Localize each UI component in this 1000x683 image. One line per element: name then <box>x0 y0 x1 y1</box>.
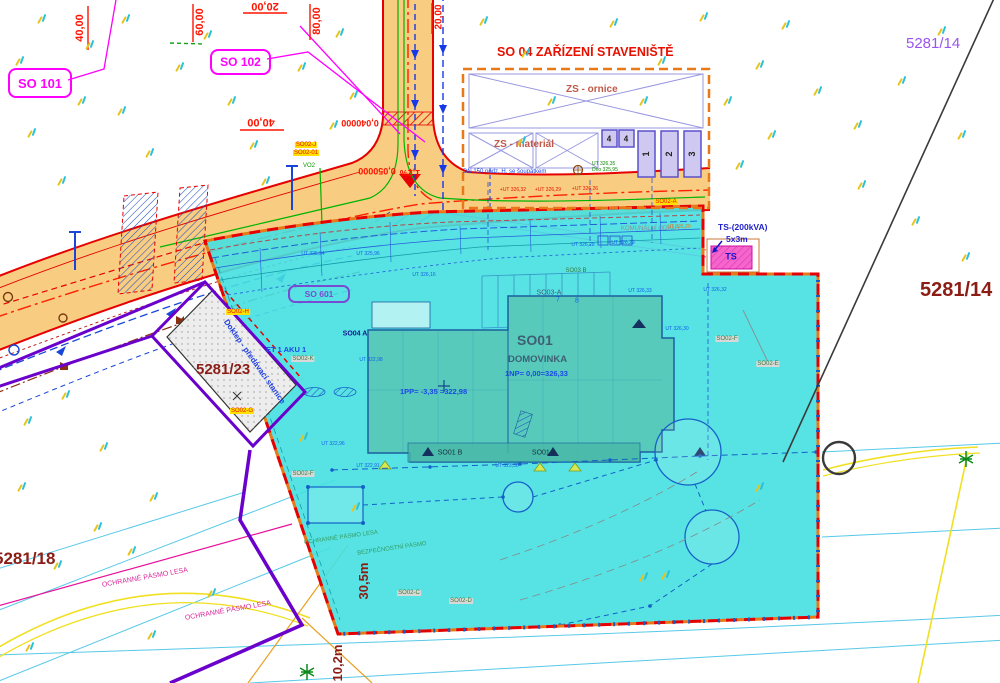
dn150-note: DN 150 podz. H. se šoupátkem <box>463 169 546 175</box>
et-aku-label: ET 1 AKU 1 <box>266 346 306 354</box>
vegetation-mark <box>658 56 666 66</box>
vegetation-mark <box>336 28 344 38</box>
object-ref-label: SO02-01 <box>293 150 319 156</box>
vegetation-mark <box>814 86 822 96</box>
vegetation-mark <box>938 26 946 36</box>
elevation-label: UT 326,29 <box>611 240 634 246</box>
text-overlay: SO 101 SO 102 SO 601 5281/14 5281/14 528… <box>0 0 1000 683</box>
elevation-label: UT 323,30 <box>495 463 518 469</box>
so04a-label: SO04 A <box>343 330 368 337</box>
object-ref-label: SO02-C <box>397 590 421 596</box>
forest-zone-1: OCHRANNÉ PÁSMO LESA <box>101 567 188 589</box>
dimension-30-5m: 30,5m <box>357 563 371 600</box>
vegetation-mark <box>330 120 338 130</box>
forest-zone-2: OCHRANNÉ PÁSMO LESA <box>184 600 271 622</box>
vegetation-mark <box>480 16 488 26</box>
vegetation-mark <box>100 442 108 452</box>
callout-so601-label: SO 601 <box>305 289 334 299</box>
so01-name: DOMOVINKA <box>508 355 567 365</box>
vegetation-mark <box>18 482 26 492</box>
vegetation-mark <box>78 96 86 106</box>
ts-kva-label: TS-(200kVA) <box>718 223 767 232</box>
object-ref-label: 2 <box>664 150 674 157</box>
object-ref-label: 8 <box>574 298 580 305</box>
object-ref-label: 4 <box>606 135 612 144</box>
vegetation-mark <box>208 588 216 598</box>
vegetation-mark <box>38 14 46 24</box>
station-label: 40,00 <box>247 116 275 128</box>
callout-so101: SO 101 <box>8 68 72 98</box>
vegetation-mark <box>128 546 136 556</box>
elevation-label: UT 326,28 <box>571 242 594 248</box>
so01-title: SO01 <box>517 333 553 348</box>
vegetation-mark <box>24 416 32 426</box>
object-ref-label: 1 <box>641 150 651 157</box>
vegetation-mark <box>700 12 708 22</box>
vegetation-mark <box>150 492 158 502</box>
zs-ornice-label: ZS - ornice <box>566 85 618 96</box>
object-ref-label: SO02-A <box>654 199 677 205</box>
station-label: 20,00 <box>434 4 445 29</box>
vegetation-mark <box>86 40 94 50</box>
elevation-label: UT 326,30 <box>665 326 688 332</box>
callout-so102-label: SO 102 <box>220 55 261 69</box>
object-ref-label: SO03 B <box>564 268 587 274</box>
vegetation-mark <box>756 60 764 70</box>
vegetation-mark <box>62 390 70 400</box>
vegetation-mark <box>958 130 966 140</box>
vegetation-mark <box>118 106 126 116</box>
callout-so102: SO 102 <box>210 49 271 75</box>
vegetation-mark <box>756 482 764 492</box>
vegetation-mark <box>176 62 184 72</box>
station-label: 40,00 <box>74 14 86 42</box>
object-ref-label: SO02-H <box>226 309 250 315</box>
vegetation-mark <box>262 176 270 186</box>
safety-zone: BEZPEČNOSTNÍ PÁSMO <box>357 541 427 557</box>
vegetation-mark <box>298 62 306 72</box>
elevation-label: UT 325,94 <box>301 251 324 257</box>
elevation-label: UT 326,20 <box>667 224 690 230</box>
ts-box-label: TS <box>725 252 737 261</box>
elevation-label: +UT 326,29 <box>535 187 561 193</box>
object-ref-label: SO02-J <box>295 142 317 148</box>
callout-so101-label: SO 101 <box>18 76 62 91</box>
object-ref-label: SO02-G <box>230 408 254 414</box>
vegetation-mark <box>148 630 156 640</box>
dno-green-label: Dno 325,95 <box>592 168 618 173</box>
vegetation-mark <box>16 56 24 66</box>
vegetation-mark <box>548 96 556 106</box>
elevation-label: UT 326,33 <box>628 288 651 294</box>
vegetation-mark <box>300 432 308 442</box>
vegetation-mark <box>122 14 130 24</box>
parcel-5281-14-right: 5281/14 <box>920 280 992 301</box>
object-ref-label: VO2 <box>302 163 316 169</box>
station-label: 1,2% <box>400 168 421 178</box>
station-label: 80,00 <box>311 7 323 35</box>
construction-site-plan: SO 101 SO 102 SO 601 5281/14 5281/14 528… <box>0 0 1000 683</box>
vegetation-mark <box>518 136 526 146</box>
vegetation-mark <box>204 30 212 40</box>
so01a-label: SO01 A <box>532 449 556 456</box>
vegetation-mark <box>724 96 732 106</box>
vegetation-mark <box>94 522 102 532</box>
vegetation-mark <box>640 96 648 106</box>
vegetation-mark <box>350 90 358 100</box>
object-ref-label: SO02-E <box>756 361 779 367</box>
vegetation-mark <box>898 76 906 86</box>
vegetation-mark <box>640 572 648 582</box>
elevation-label: UT 322,98 <box>359 357 382 363</box>
object-ref-label: 7 <box>555 297 561 304</box>
object-ref-label: 4 <box>623 135 629 144</box>
object-ref-label: SO02-F <box>715 336 738 342</box>
elevation-label: +UT 326,26 <box>572 186 598 192</box>
elevation-label: UT 325,96 <box>356 251 379 257</box>
forest-zone-3: OCHRANNÉ PÁSMO LESA <box>304 530 379 547</box>
vegetation-mark <box>522 48 530 58</box>
vegetation-mark <box>854 120 862 130</box>
vegetation-mark <box>58 176 66 186</box>
dimension-10-2m: 10,2m <box>331 645 345 682</box>
ts-size-label: 5x3m <box>726 235 748 244</box>
parcel-5281-23: 5281/23 <box>196 362 250 378</box>
object-ref-label: SO02-F <box>291 471 314 477</box>
callout-so601: SO 601 <box>288 285 350 303</box>
so01-level-np1: 1NP= 0,00=326,33 <box>505 370 568 378</box>
vegetation-mark <box>146 148 154 158</box>
vegetation-mark <box>782 20 790 30</box>
object-ref-label: 3 <box>687 150 697 157</box>
parcel-5281-18: 5281/18 <box>0 550 55 568</box>
station-label: 20,00 <box>251 0 279 12</box>
vegetation-mark <box>352 502 360 512</box>
so01b-label: SO01 B <box>438 449 463 456</box>
elevation-label: UT 326,32 <box>703 287 726 293</box>
station-label: 0,040000 <box>341 118 379 128</box>
so01-level-pp1: 1PP= -3,35 =322,98 <box>400 388 467 396</box>
vegetation-mark <box>26 642 34 652</box>
vegetation-mark <box>250 140 258 150</box>
station-label: 0,050000 <box>358 166 396 176</box>
object-ref-label: SO02-K <box>291 356 314 362</box>
vegetation-mark <box>662 570 670 580</box>
vegetation-mark <box>912 216 920 226</box>
vegetation-mark <box>28 128 36 138</box>
object-ref-label: SO02-D <box>449 598 473 604</box>
vegetation-mark <box>736 160 744 170</box>
elevation-label: +UT 326,32 <box>500 187 526 193</box>
parcel-5281-14-top: 5281/14 <box>906 36 960 52</box>
vegetation-mark <box>962 252 970 262</box>
elevation-label: UT 322,91 <box>356 463 379 469</box>
vegetation-mark <box>54 560 62 570</box>
vegetation-mark <box>228 96 236 106</box>
elevation-label: UT 322,96 <box>321 441 344 447</box>
vegetation-mark <box>768 130 776 140</box>
elevation-label: UT 326,16 <box>412 272 435 278</box>
vegetation-mark <box>610 18 618 28</box>
vegetation-mark <box>858 180 866 190</box>
